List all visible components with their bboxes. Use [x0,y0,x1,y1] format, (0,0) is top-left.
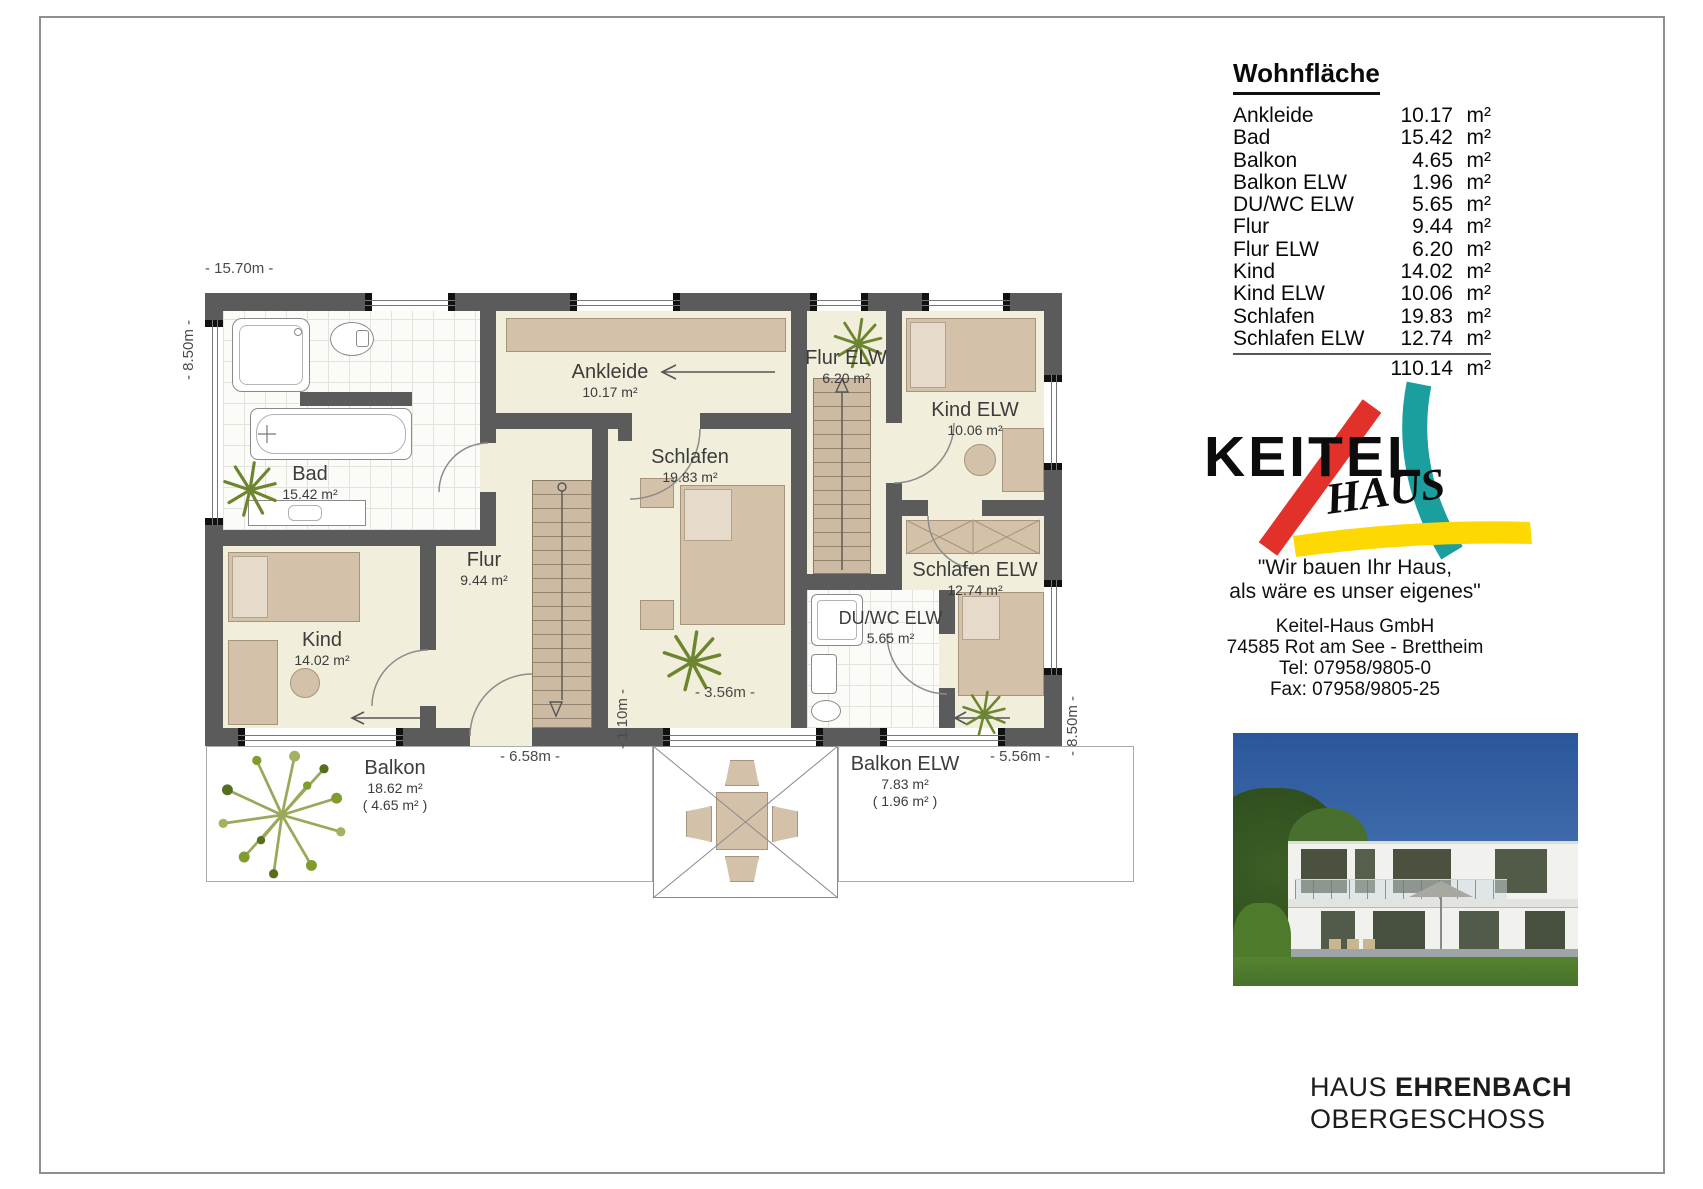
bed-schlafen-elw-pillow [962,596,1000,640]
room-label-kind: Kind 14.02 m² [272,628,372,669]
sheet-title-prefix: HAUS [1310,1072,1395,1102]
table-row: Balkon ELW1.96m² [1233,172,1491,194]
dim-balkon-elw-width: - 5.56m - [960,748,1080,765]
room-label-schlafen: Schlafen 19.83 m² [640,445,740,486]
sheet-title-name: EHRENBACH [1395,1072,1572,1102]
room-label-duwc-elw: DU/WC ELW 5.65 m² [838,608,943,646]
area-table-title: Wohnfläche [1233,58,1380,95]
dim-width-top: - 15.70m - [205,260,273,277]
wardrobe-ankleide [506,318,786,352]
table-row: Flur ELW6.20m² [1233,239,1491,261]
toilet-bad-cistern [356,330,369,347]
dim-terrace-depth: - 1.10m - [614,682,631,756]
table-row: Kind14.02m² [1233,261,1491,283]
shower-drain [294,328,302,336]
table-row: Schlafen19.83m² [1233,306,1491,328]
table-row: Balkon4.65m² [1233,150,1491,172]
photo-lawn [1233,957,1578,986]
dim-height-left: - 8.50m - [180,300,197,400]
bed-schlafen-pillow [684,489,732,541]
room-label-flur-elw: Flur ELW 6.20 m² [796,346,896,387]
room-label-bad: Bad 15.42 m² [260,462,360,503]
table-row: DU/WC ELW5.65m² [1233,194,1491,216]
bathtub-inner [256,414,406,454]
brand-company: Keitel-Haus GmbH [1205,616,1505,638]
sheet-title: HAUS EHRENBACH [1310,1072,1572,1103]
room-label-flur: Flur 9.44 m² [436,548,532,589]
dim-balkon-width: - 6.58m - [470,748,590,765]
staircase-main [532,480,592,728]
wardrobe-schlafen-elw [906,520,1040,554]
desk-kind [228,640,278,725]
nightstand-2 [640,600,674,630]
vanity-basin [288,505,322,521]
staircase-elw [813,378,871,574]
brand-slogan-line2: als wäre es unser eigenes" [1205,580,1505,604]
terrace-chair-left [686,806,712,842]
room-label-balkon-elw: Balkon ELW 7.83 m² ( 1.96 m² ) [845,752,965,810]
room-label-ankleide: Ankleide 10.17 m² [560,360,660,401]
brand-fax: Fax: 07958/9805-25 [1205,679,1505,701]
terrace-table [716,792,768,850]
terrace-chair-bottom [725,856,759,882]
floorplan-sheet: KEITEL HAUS Bad 15.42 m² Ankleide 10.17 … [0,0,1703,1189]
table-total-row: 110.14m² [1233,353,1491,380]
table-row: Flur9.44m² [1233,216,1491,238]
bed-kind-elw-pillow [910,322,946,388]
sheet-subtitle: OBERGESCHOSS [1310,1104,1546,1135]
brand-tel: Tel: 07958/9805-0 [1205,658,1505,680]
table-row: Bad15.42m² [1233,127,1491,149]
area-table: Wohnfläche Ankleide10.17m² Bad15.42m² Ba… [1233,58,1491,381]
house-photo [1233,733,1578,986]
room-label-kind-elw: Kind ELW 10.06 m² [925,398,1025,439]
shower-inner [239,325,303,385]
chair-kind-elw [964,444,996,476]
room-label-schlafen-elw: Schlafen ELW 12.74 m² [910,558,1040,599]
dim-terrace-width: - 3.56m - [665,684,785,701]
terrace-chair-right [772,806,798,842]
brand-slogan-line1: "Wir bauen Ihr Haus, [1205,556,1505,580]
toilet-duwc [811,700,841,722]
bed-kind-pillow [232,556,268,618]
chair-kind [290,668,320,698]
brand-address: 74585 Rot am See - Brettheim [1205,637,1505,659]
sink-duwc [811,654,837,694]
table-row: Kind ELW10.06m² [1233,283,1491,305]
table-row: Ankleide10.17m² [1233,105,1491,127]
table-row: Schlafen ELW12.74m² [1233,328,1491,350]
room-label-balkon: Balkon 18.62 m² ( 4.65 m² ) [345,756,445,814]
photo-umbrella [1409,881,1473,897]
terrace-chair-top [725,760,759,786]
